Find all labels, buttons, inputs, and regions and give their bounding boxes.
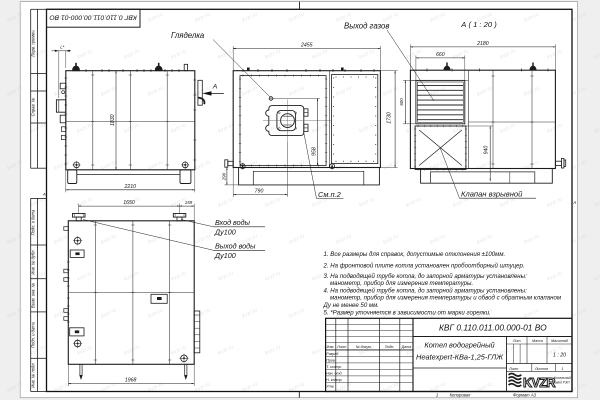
svg-text:2180: 2180: [476, 41, 489, 47]
svg-text:Котел водогрейный: Котел водогрейный: [424, 341, 494, 350]
svg-text:1: 1: [562, 367, 564, 371]
svg-text:Т. контр.: Т. контр.: [326, 365, 342, 369]
svg-text:Подп. и дата: Подп. и дата: [31, 321, 36, 347]
svg-text:Ду не менее 50 мм.: Ду не менее 50 мм.: [323, 302, 379, 309]
svg-text:1830: 1830: [110, 114, 116, 126]
svg-text:Подп. и дата: Подп. и дата: [31, 209, 36, 235]
svg-text:Масштаб: Масштаб: [551, 339, 569, 343]
svg-text:Вход воды: Вход воды: [215, 218, 251, 227]
svg-text:Heatexpert-КВа-1,25-ГЛЖ: Heatexpert-КВа-1,25-ГЛЖ: [416, 353, 504, 362]
svg-text:Н. контр.: Н. контр.: [326, 378, 342, 382]
svg-text:завод РЭП: завод РЭП: [553, 381, 571, 385]
svg-text:КВГ 0.110.011.00.000-01 ВО: КВГ 0.110.011.00.000-01 ВО: [49, 14, 137, 21]
svg-text:1730: 1730: [387, 112, 393, 124]
svg-text:Лит.: Лит.: [512, 339, 521, 343]
svg-text:1. Все размеры для справок, до: 1. Все размеры для справок, допустимые о…: [324, 251, 506, 258]
svg-text:2. На фронтовой плите котла ус: 2. На фронтовой плите котла установлен п…: [323, 263, 525, 270]
svg-text:5. *Размер уточняется в зависи: 5. *Размер уточняется в зависимости от м…: [324, 309, 491, 316]
svg-text:1650: 1650: [123, 200, 135, 206]
svg-text:1: 1: [436, 392, 438, 397]
svg-text:Листов: Листов: [534, 367, 548, 371]
svg-text:Ду100: Ду100: [214, 227, 236, 236]
svg-text:Выход воды: Выход воды: [215, 242, 256, 251]
svg-text:Пров.: Пров.: [326, 359, 335, 363]
svg-text:КВГ 0.110.011.00.000-01 ВО: КВГ 0.110.011.00.000-01 ВО: [439, 323, 547, 333]
svg-text:Утв.: Утв.: [326, 385, 334, 389]
svg-text:1968: 1968: [125, 377, 137, 383]
svg-text:См.п.2: См.п.2: [318, 190, 341, 199]
svg-text:манометр, прибор для измерения: манометр, прибор для измерения температу…: [330, 280, 473, 287]
svg-text:Котельный: Котельный: [554, 376, 572, 380]
svg-text:Инв. № дубл.: Инв. № дубл.: [31, 249, 36, 274]
svg-text:А: А: [212, 84, 218, 91]
svg-text:660: 660: [436, 52, 445, 58]
svg-text:KVZR: KVZR: [523, 376, 556, 390]
svg-text:Выход газов: Выход газов: [344, 22, 389, 31]
svg-text:Лист: Лист: [508, 367, 518, 371]
svg-text:Формат А3: Формат А3: [513, 392, 537, 397]
svg-text:Разраб.: Разраб.: [326, 352, 339, 356]
svg-text:940: 940: [484, 146, 490, 155]
svg-text:1 : 20: 1 : 20: [553, 353, 566, 359]
svg-text:L*: L*: [60, 44, 64, 49]
svg-text:Ду100: Ду100: [214, 251, 236, 260]
svg-text:А: А: [42, 192, 46, 197]
svg-text:Инв. № подл.: Инв. № подл.: [31, 362, 36, 387]
svg-text:Масса: Масса: [532, 339, 543, 343]
svg-text:манометр, прибор для измерения: манометр, прибор для измерения температу…: [330, 295, 562, 302]
svg-text:№ докум.: № докум.: [356, 345, 372, 349]
svg-text:А: А: [572, 200, 576, 205]
svg-text:Перв. примен.: Перв. примен.: [31, 29, 36, 56]
svg-text:А ( 1 : 20 ): А ( 1 : 20 ): [460, 20, 497, 29]
svg-text:2455: 2455: [300, 43, 313, 49]
svg-text:600: 600: [399, 98, 404, 106]
svg-text:290: 290: [221, 172, 226, 181]
svg-text:958: 958: [312, 147, 318, 156]
svg-text:Гляделка: Гляделка: [171, 31, 205, 40]
svg-text:2210: 2210: [124, 184, 137, 190]
svg-text:Изм.: Изм.: [327, 345, 335, 349]
svg-text:Лист: Лист: [336, 345, 346, 349]
svg-text:Нач. отд.: Нач. отд.: [326, 372, 342, 376]
svg-text:Взам. инв. №: Взам. инв. №: [31, 282, 36, 308]
svg-text:Справ. №: Справ. №: [31, 97, 36, 116]
svg-text:4. На подводящей трубе котла,: 4. На подводящей трубе котла, до запорно…: [324, 288, 528, 295]
svg-text:Подп.: Подп.: [385, 345, 395, 349]
svg-text:Дата: Дата: [401, 345, 411, 349]
svg-text:159: 159: [185, 200, 193, 205]
svg-text:Копировал: Копировал: [450, 392, 471, 397]
svg-text:Клапан взрывной: Клапан взрывной: [461, 190, 523, 199]
svg-text:790: 790: [255, 189, 264, 195]
